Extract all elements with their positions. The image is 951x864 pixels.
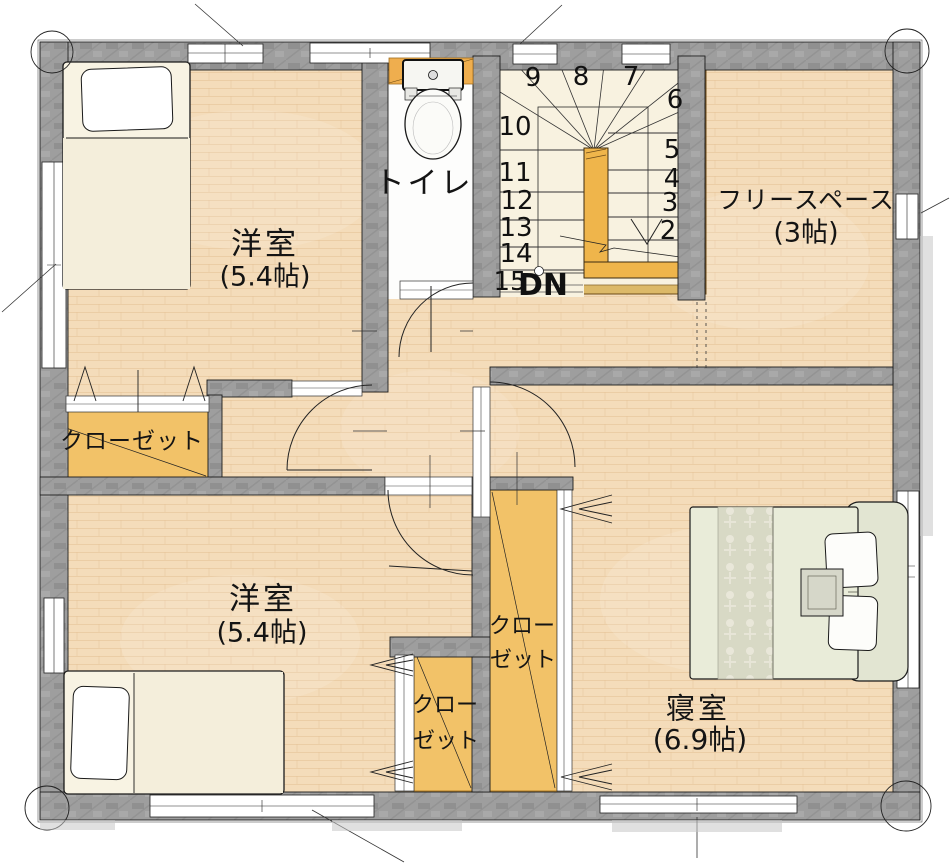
stair-step-number: 14 (499, 241, 532, 267)
bedroom-size: (6.9帖) (653, 726, 747, 754)
stair-step-number: 8 (573, 64, 590, 90)
bedroom-name: 寝室 (666, 695, 730, 724)
wall-toilet-left (362, 56, 388, 392)
closet-bl-label-1: クロー (412, 695, 478, 717)
stair-step-number: 13 (499, 215, 532, 241)
closet-bl-label-2: ゼット (413, 731, 479, 753)
stair-step-number: 5 (664, 137, 681, 163)
wall-bedroom-top (490, 367, 893, 385)
doorway-bedroom (473, 387, 490, 517)
western-bottom-size: (5.4帖) (216, 620, 307, 647)
toilet-label: トイレ (375, 169, 474, 199)
stair-step-number: 2 (660, 218, 677, 244)
wall-corridor-top (207, 380, 292, 397)
western-bottom-name: 洋室 (229, 585, 297, 616)
stair-step-number: 11 (498, 160, 531, 186)
wall-closet-br-top (490, 477, 573, 490)
western-top-size: (5.4帖) (219, 264, 310, 291)
stair-step-number: 6 (667, 87, 684, 113)
wall-closet-bl-top (390, 637, 490, 657)
free-space-size: (3帖) (773, 220, 838, 247)
stair-step-number: 7 (623, 64, 640, 90)
doorway-western-top (292, 381, 362, 396)
blanket-pattern-strip (718, 507, 773, 679)
flush-button (429, 71, 438, 80)
stair-step-number: 3 (662, 190, 679, 216)
stair-down-label: DN (518, 271, 568, 301)
wall-corridor-bottom (40, 477, 385, 495)
free-space-name: フリースペース (717, 188, 895, 213)
stair-step-number: 12 (500, 188, 533, 214)
floor-plan: トイレ 洋室 (5.4帖) フリースペース (3帖) 洋室 (5.4帖) 寝室 … (0, 0, 951, 864)
wall-outer-right (893, 42, 920, 820)
bed-western-bottom (64, 671, 284, 794)
stair-step-number: 10 (498, 114, 531, 140)
wall-toilet-right (473, 56, 500, 297)
closet-left-label: クローゼット (60, 431, 204, 454)
bed-bedroom (690, 502, 908, 681)
stair-step-number: 9 (525, 65, 542, 91)
western-top-name: 洋室 (231, 230, 299, 261)
window-top-1 (188, 44, 263, 63)
pillow (70, 686, 129, 780)
closet-br-label-1: クロー (489, 616, 555, 638)
pillow (81, 66, 173, 131)
doorway-closet-br (557, 490, 572, 791)
bed-western-top (63, 62, 190, 289)
closet-br-label-2: ゼット (490, 650, 556, 672)
window-bottom-2 (600, 796, 797, 813)
